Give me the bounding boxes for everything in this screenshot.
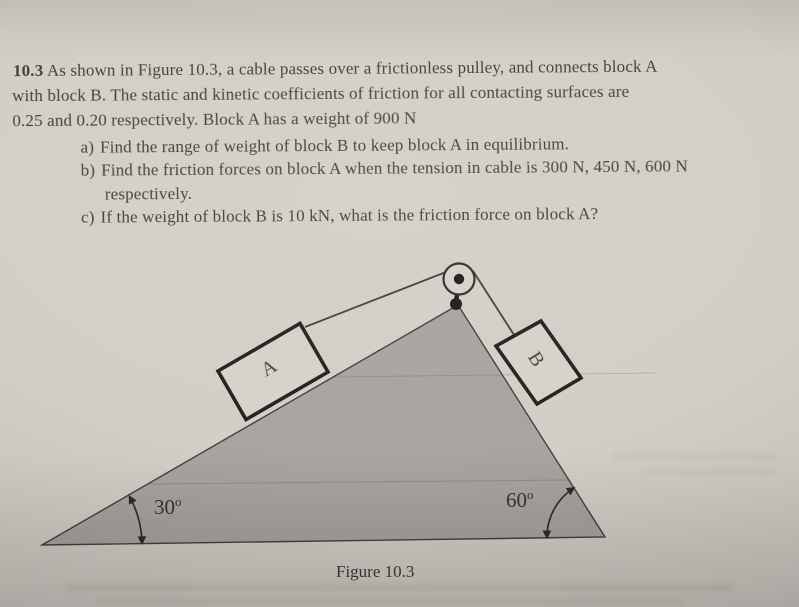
photographed-page: 10.3 As shown in Figure 10.3, a cable pa…	[0, 0, 799, 607]
figure-caption: Figure 10.3	[336, 562, 414, 582]
cable-a	[305, 272, 446, 327]
figure-diagram	[0, 0, 799, 607]
angle-60-degree-mark: o	[527, 487, 534, 502]
cable-b	[473, 271, 516, 338]
angle-30-degree-mark: o	[175, 494, 182, 509]
apex-pin-dot	[450, 298, 462, 310]
angle-60-label: 60o	[506, 487, 534, 513]
angle-30-value: 30	[154, 495, 175, 519]
pulley-axle-dot	[454, 274, 464, 284]
angle-30-label: 30o	[154, 494, 182, 520]
angle-60-value: 60	[506, 488, 527, 512]
